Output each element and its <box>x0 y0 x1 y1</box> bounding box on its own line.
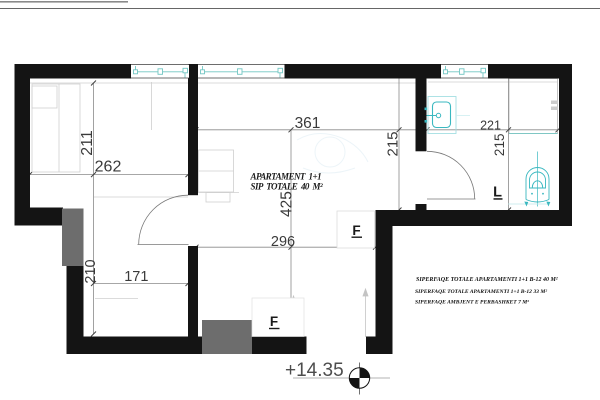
svg-text:221: 221 <box>480 119 501 133</box>
svg-text:F: F <box>352 223 360 238</box>
svg-text:361: 361 <box>295 115 321 132</box>
svg-text:SIP TOTALE 40 M²: SIP TOTALE 40 M² <box>251 182 324 192</box>
svg-text:171: 171 <box>124 269 148 285</box>
svg-text:215: 215 <box>385 131 402 156</box>
svg-text:APARTAMENT 1+1: APARTAMENT 1+1 <box>250 172 322 182</box>
svg-text:SIPERFAQE AMBJENT E PERBASHKET: SIPERFAQE AMBJENT E PERBASHKET 7 M² <box>415 300 529 306</box>
svg-text:215: 215 <box>492 134 507 157</box>
svg-text:SIPERFAQE TOTALE APARTAMENTI 1: SIPERFAQE TOTALE APARTAMENTI 1+1 B-12 33… <box>415 289 547 295</box>
svg-text:F: F <box>270 314 278 329</box>
svg-text:262: 262 <box>95 159 122 176</box>
svg-text:210: 210 <box>83 259 99 283</box>
svg-text:296: 296 <box>271 234 295 250</box>
svg-text:L: L <box>493 185 502 201</box>
svg-text:425: 425 <box>279 191 296 217</box>
svg-text:211: 211 <box>79 130 96 156</box>
svg-text:SIPERFAQE TOTALE APARTAMENTI 1: SIPERFAQE TOTALE APARTAMENTI 1+1 B-12 40… <box>416 277 558 283</box>
